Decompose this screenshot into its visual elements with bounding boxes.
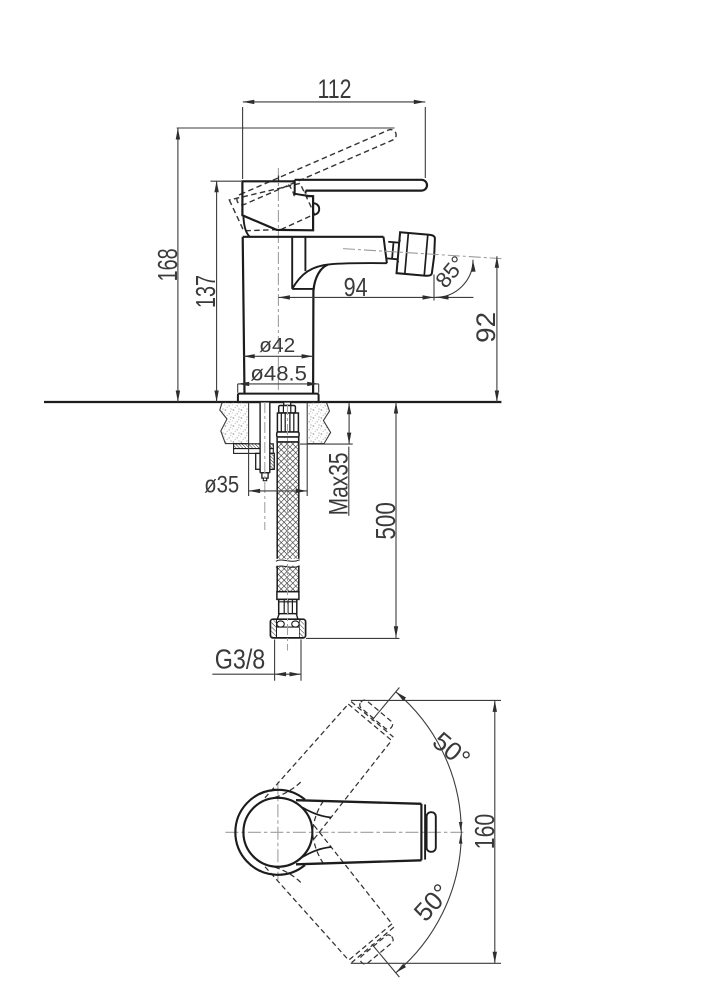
svg-text:168: 168 — [152, 248, 183, 281]
svg-text:ø42: ø42 — [259, 334, 295, 357]
svg-text:137: 137 — [190, 275, 221, 308]
svg-text:500: 500 — [370, 502, 401, 540]
svg-text:112: 112 — [318, 74, 352, 104]
svg-text:160: 160 — [469, 814, 500, 850]
svg-text:92: 92 — [471, 312, 501, 343]
svg-text:94: 94 — [344, 274, 368, 302]
svg-text:ø48.5: ø48.5 — [250, 361, 307, 385]
svg-text:Max35: Max35 — [324, 452, 354, 515]
svg-text:G3/8: G3/8 — [215, 643, 266, 674]
svg-text:ø35: ø35 — [204, 471, 239, 498]
